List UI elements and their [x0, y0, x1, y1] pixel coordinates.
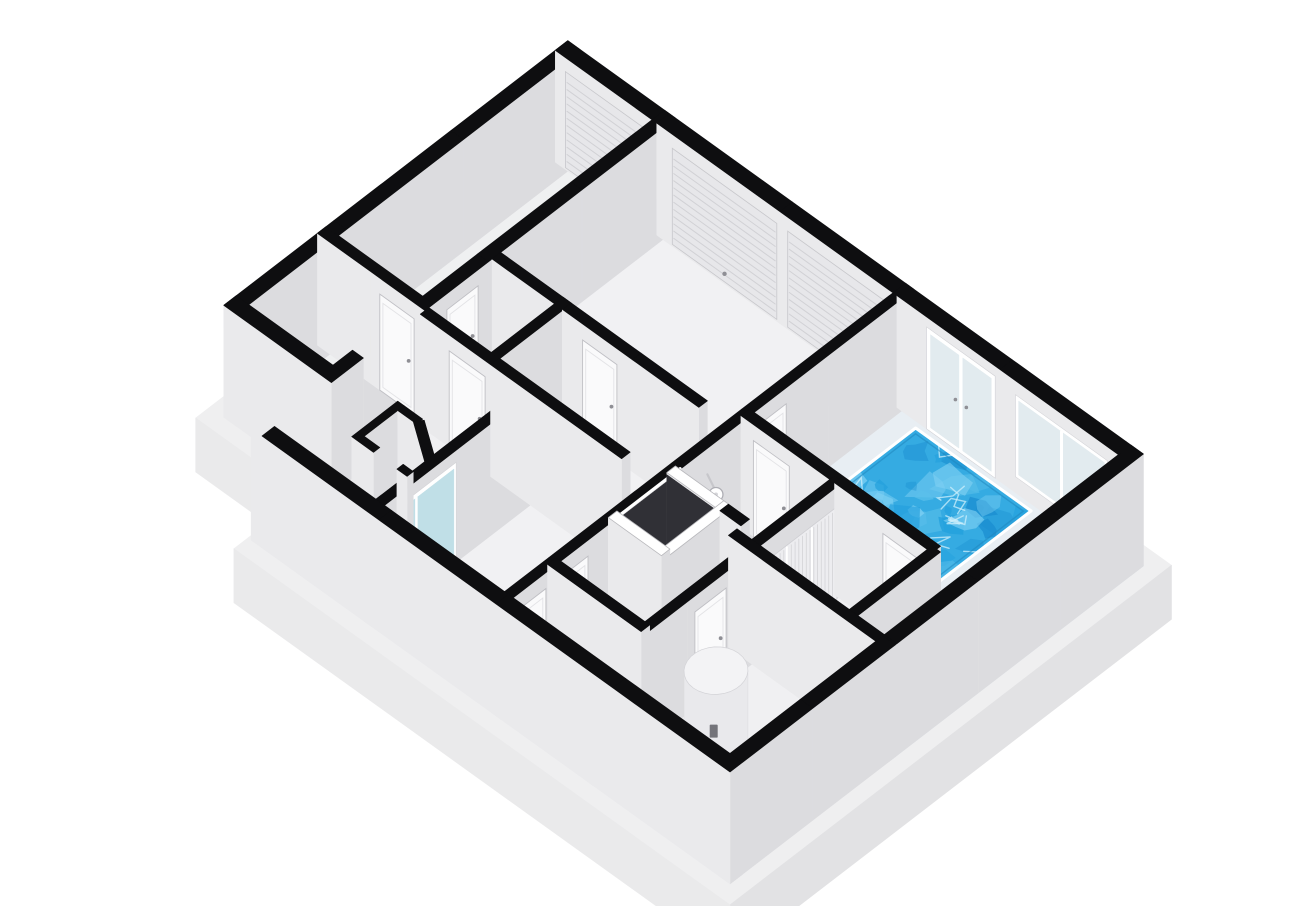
floor-plan-3d — [40, 16, 1300, 906]
floor-plan-svg — [40, 16, 1300, 906]
heater-label — [710, 725, 718, 738]
